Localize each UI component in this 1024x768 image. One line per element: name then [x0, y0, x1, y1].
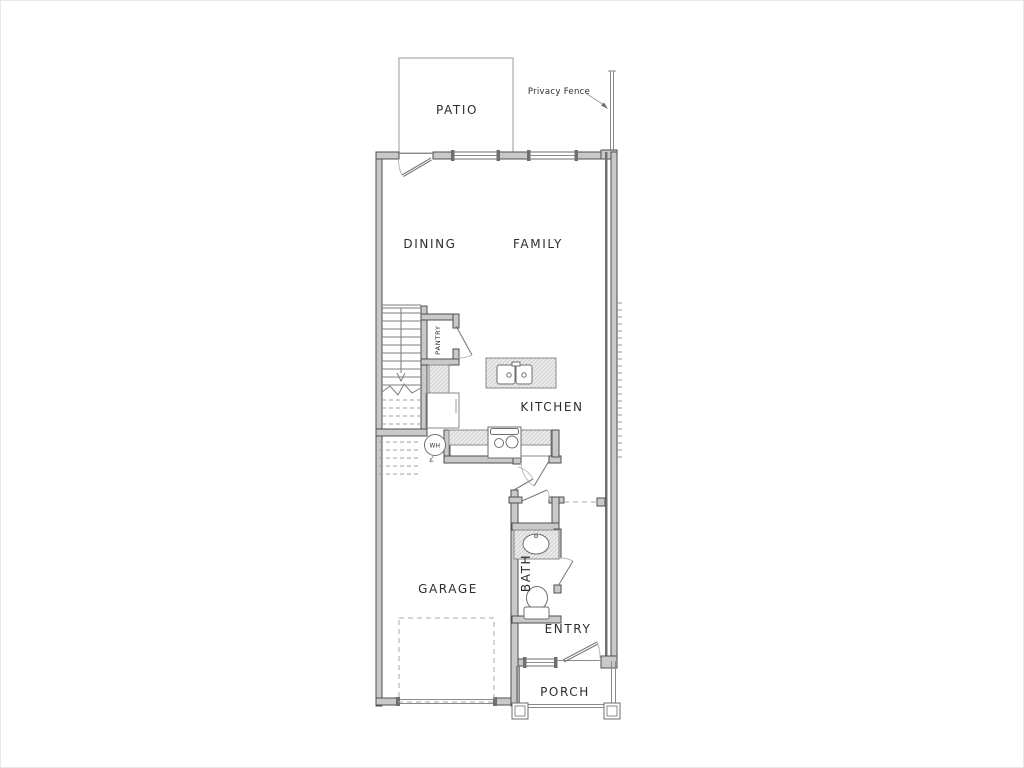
- bath-label: BATH: [519, 554, 533, 592]
- garage-entry-door: [514, 467, 533, 490]
- porch-label: PORCH: [540, 685, 590, 699]
- window: [523, 657, 558, 668]
- family-label: FAMILY: [513, 237, 563, 251]
- party-wall-ticks: [617, 303, 622, 457]
- water-heater-label: WH: [430, 444, 441, 450]
- garage-label: GARAGE: [418, 582, 478, 596]
- garage-door-overhead-dashed: [399, 618, 494, 702]
- pantry-label: PANTRY: [434, 325, 442, 355]
- staircase: [376, 305, 427, 474]
- privacy-fence-line: [608, 71, 616, 152]
- porch-column: [512, 703, 528, 719]
- kitchen-hall-door: [521, 461, 549, 486]
- bath-door: [558, 558, 573, 586]
- cased-opening: [564, 498, 605, 506]
- refrigerator: [426, 365, 459, 428]
- kitchen-label: KITCHEN: [520, 400, 583, 414]
- window: [451, 150, 500, 161]
- patio-label: PATIO: [436, 103, 478, 117]
- front-door: [557, 642, 601, 662]
- porch-column: [604, 703, 620, 719]
- entry-label: ENTRY: [545, 622, 592, 636]
- dining-label: DINING: [403, 237, 456, 251]
- range-stove: [488, 427, 521, 458]
- floor-plan-page: PATIO Privacy Fence DINING FAMILY KITCHE…: [0, 0, 1024, 768]
- privacy-fence-label: Privacy Fence: [528, 87, 590, 97]
- floor-plan-canvas: PATIO Privacy Fence DINING FAMILY KITCHE…: [1, 1, 1024, 768]
- pantry-closet: [421, 314, 472, 365]
- kitchen-island: [486, 358, 556, 388]
- window: [527, 150, 578, 161]
- patio-door: [398, 154, 433, 177]
